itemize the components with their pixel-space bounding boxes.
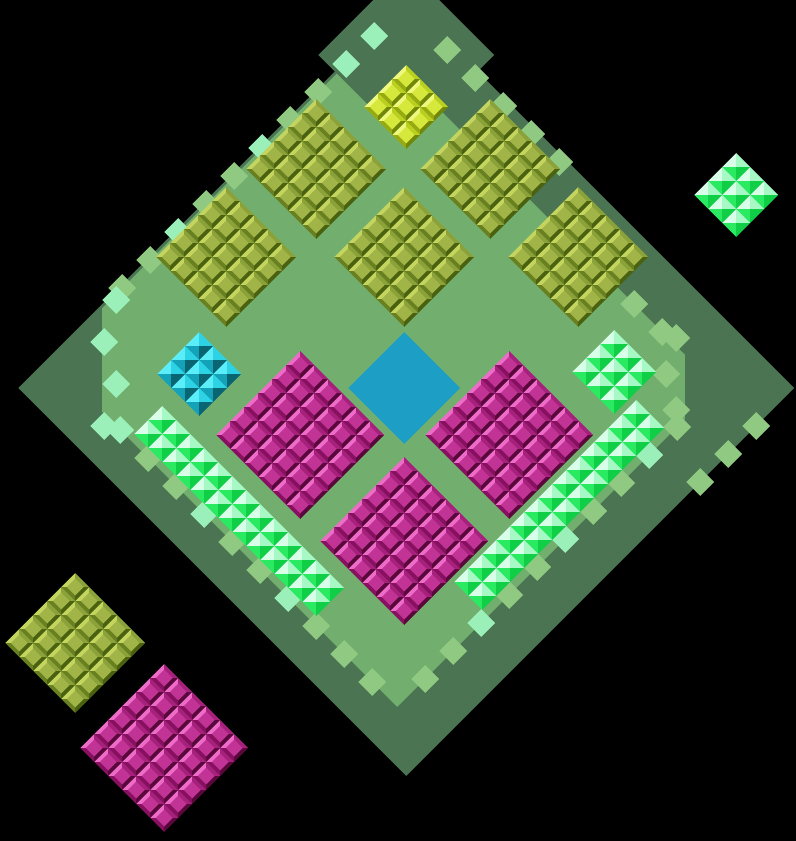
board-canvas	[0, 0, 796, 841]
game-board	[0, 0, 796, 841]
